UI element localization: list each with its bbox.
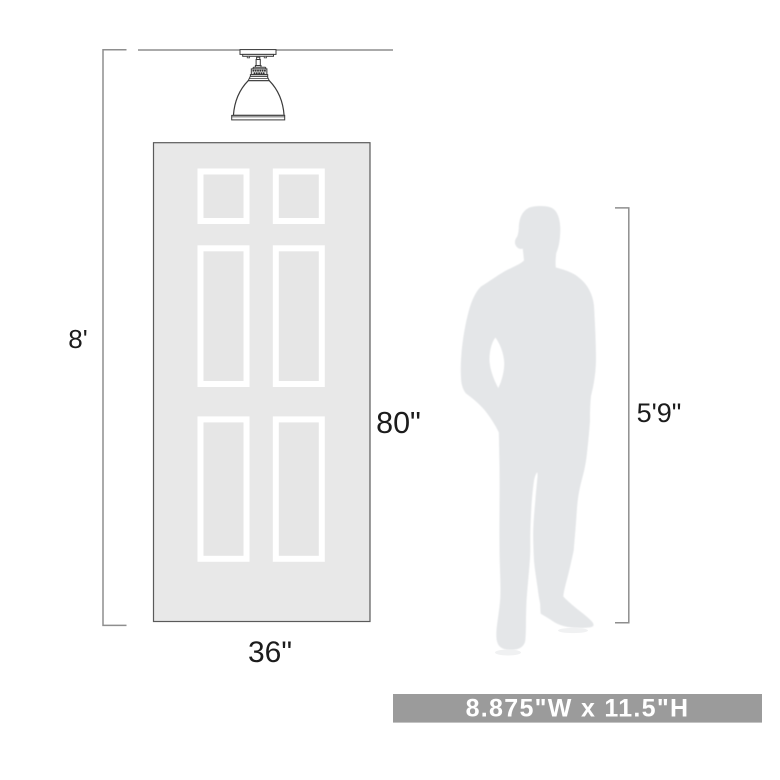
svg-text:36": 36"	[248, 636, 292, 669]
svg-text:8.875"W x 11.5"H: 8.875"W x 11.5"H	[466, 695, 690, 723]
svg-text:5'9": 5'9"	[637, 398, 682, 428]
svg-text:80": 80"	[376, 406, 421, 440]
svg-text:8': 8'	[68, 324, 87, 354]
